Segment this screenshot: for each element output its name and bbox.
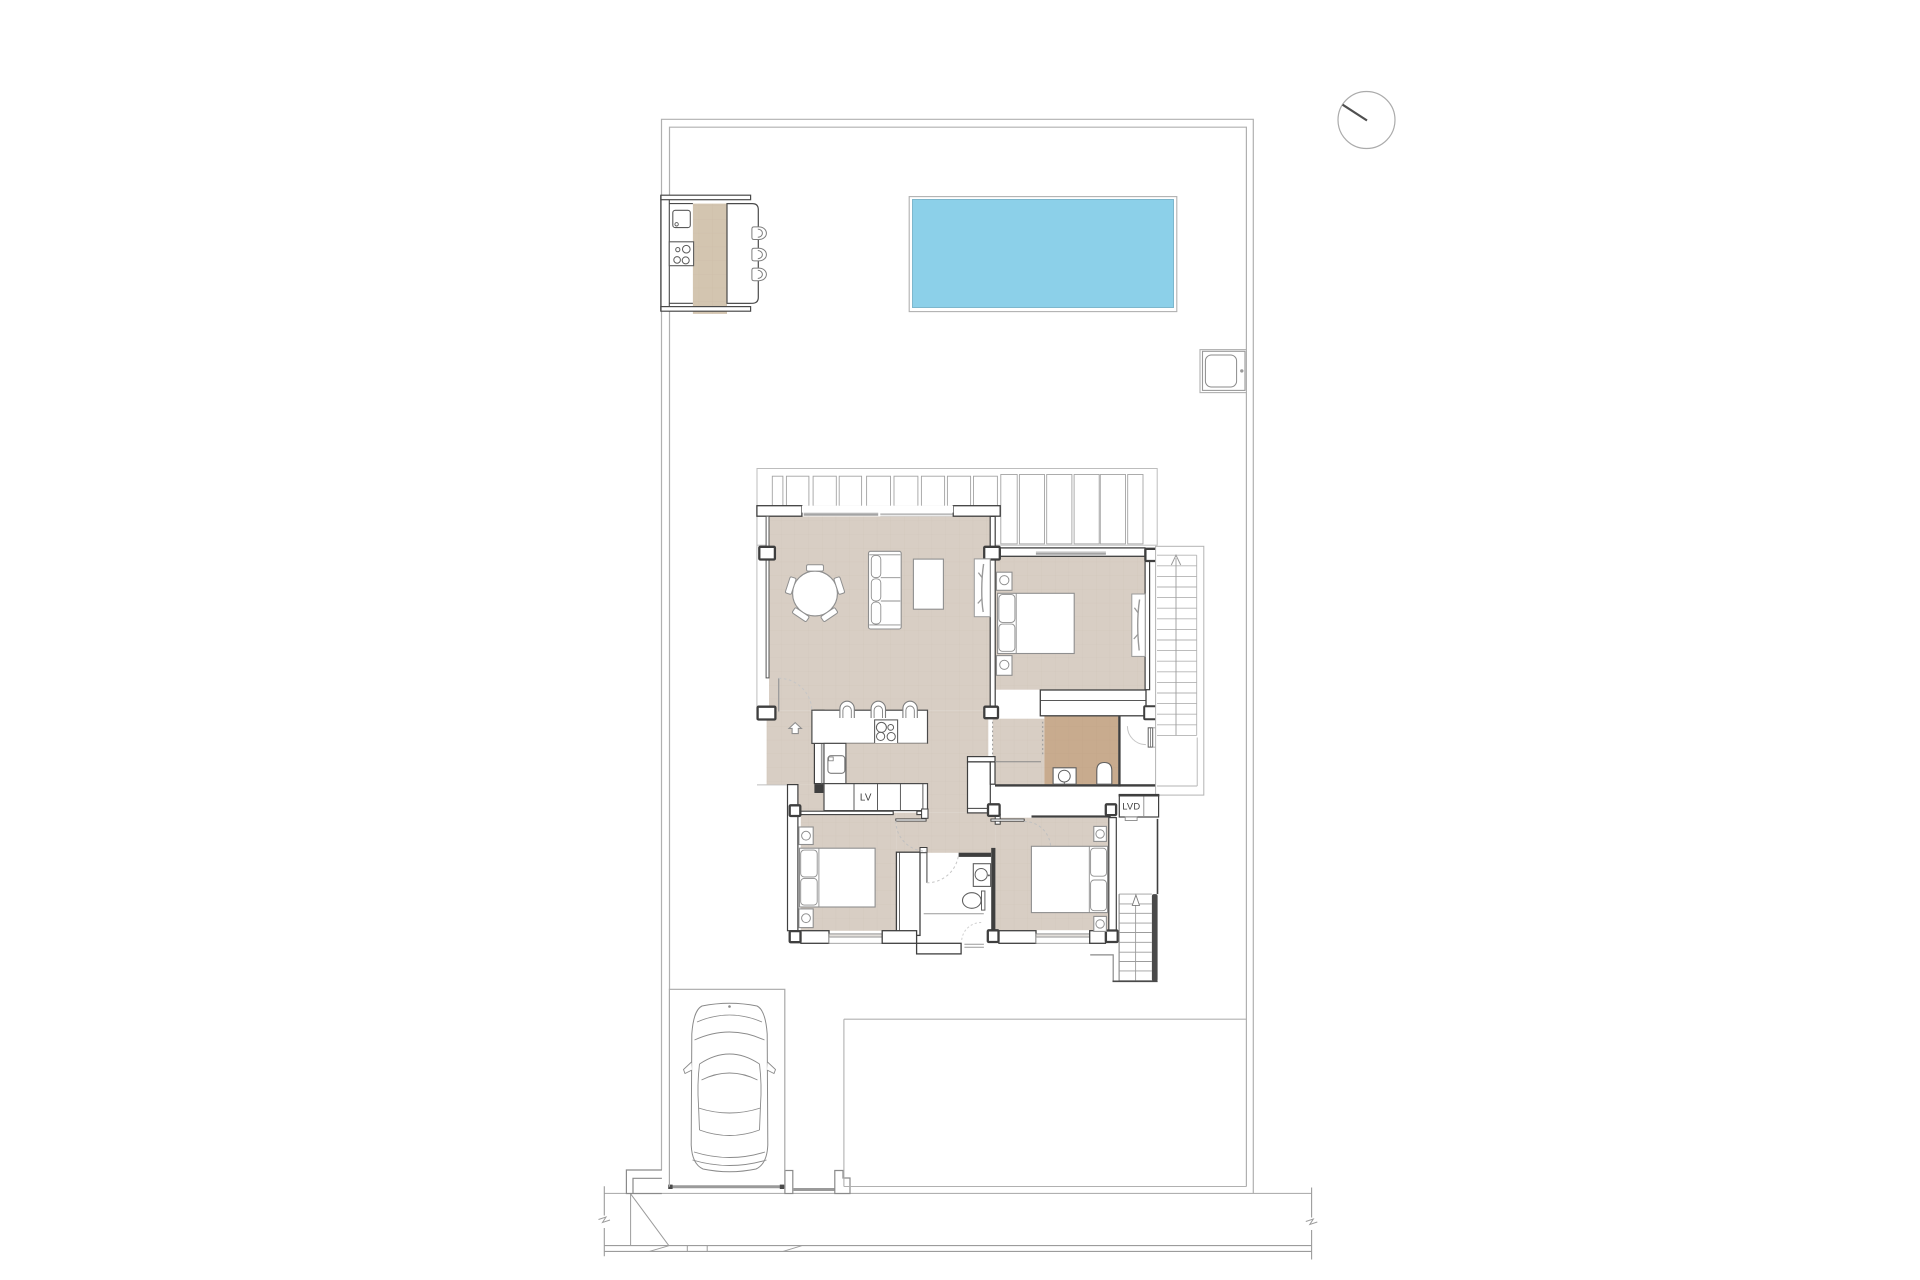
svg-text:LVD: LVD <box>1122 801 1140 812</box>
svg-text:LV: LV <box>860 793 872 804</box>
